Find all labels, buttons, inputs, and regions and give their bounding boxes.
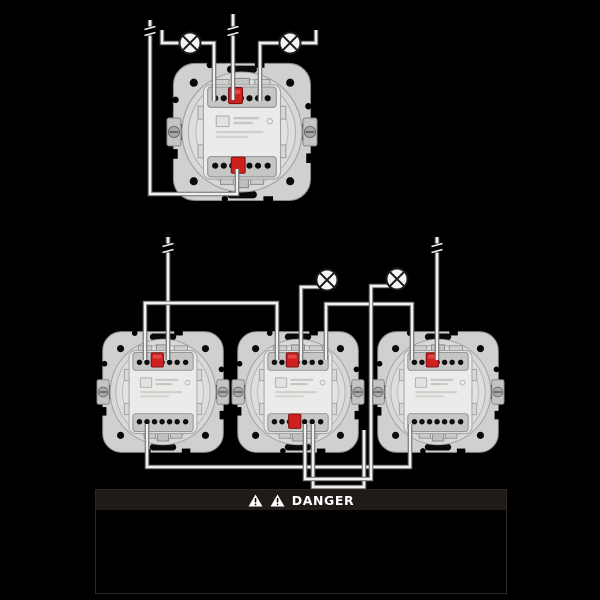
switch-mechanism-bottom-middle [232, 329, 364, 455]
warning-triangle-icon [248, 494, 263, 507]
release-button-red [289, 414, 301, 428]
danger-banner: DANGER [95, 489, 507, 594]
switch-mechanism-top [167, 60, 317, 204]
wiring-diagram-page: DANGER [0, 0, 600, 600]
danger-title: DANGER [292, 493, 355, 508]
danger-header: DANGER [95, 489, 507, 512]
switch-mechanism-bottom-left [97, 329, 229, 455]
warning-triangle-icon [270, 494, 285, 507]
danger-body [95, 510, 507, 594]
